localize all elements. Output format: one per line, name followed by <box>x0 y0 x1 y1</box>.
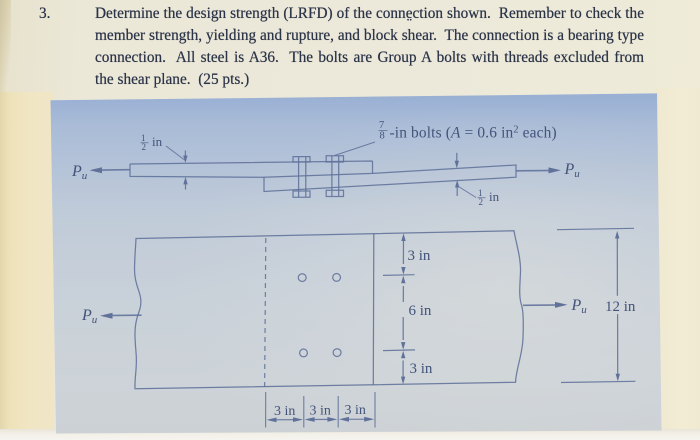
svg-text:2: 2 <box>142 142 147 152</box>
svg-text:3 in: 3 in <box>274 404 295 419</box>
svg-text:in: in <box>152 134 163 149</box>
svg-text:3 in: 3 in <box>410 361 433 377</box>
svg-text:in: in <box>489 189 500 204</box>
svg-text:-in bolts (A = 0.6 in2 each): -in bolts (A = 0.6 in2 each) <box>390 125 557 142</box>
svg-text:7: 7 <box>379 120 384 131</box>
svg-text:12 in: 12 in <box>605 299 636 315</box>
svg-text:6 in: 6 in <box>409 303 432 319</box>
svg-text:3 in: 3 in <box>345 403 366 418</box>
svg-text:2: 2 <box>479 197 484 207</box>
svg-text:3 in: 3 in <box>408 248 431 264</box>
svg-text:3 in: 3 in <box>310 404 331 419</box>
svg-text:8: 8 <box>380 131 385 142</box>
